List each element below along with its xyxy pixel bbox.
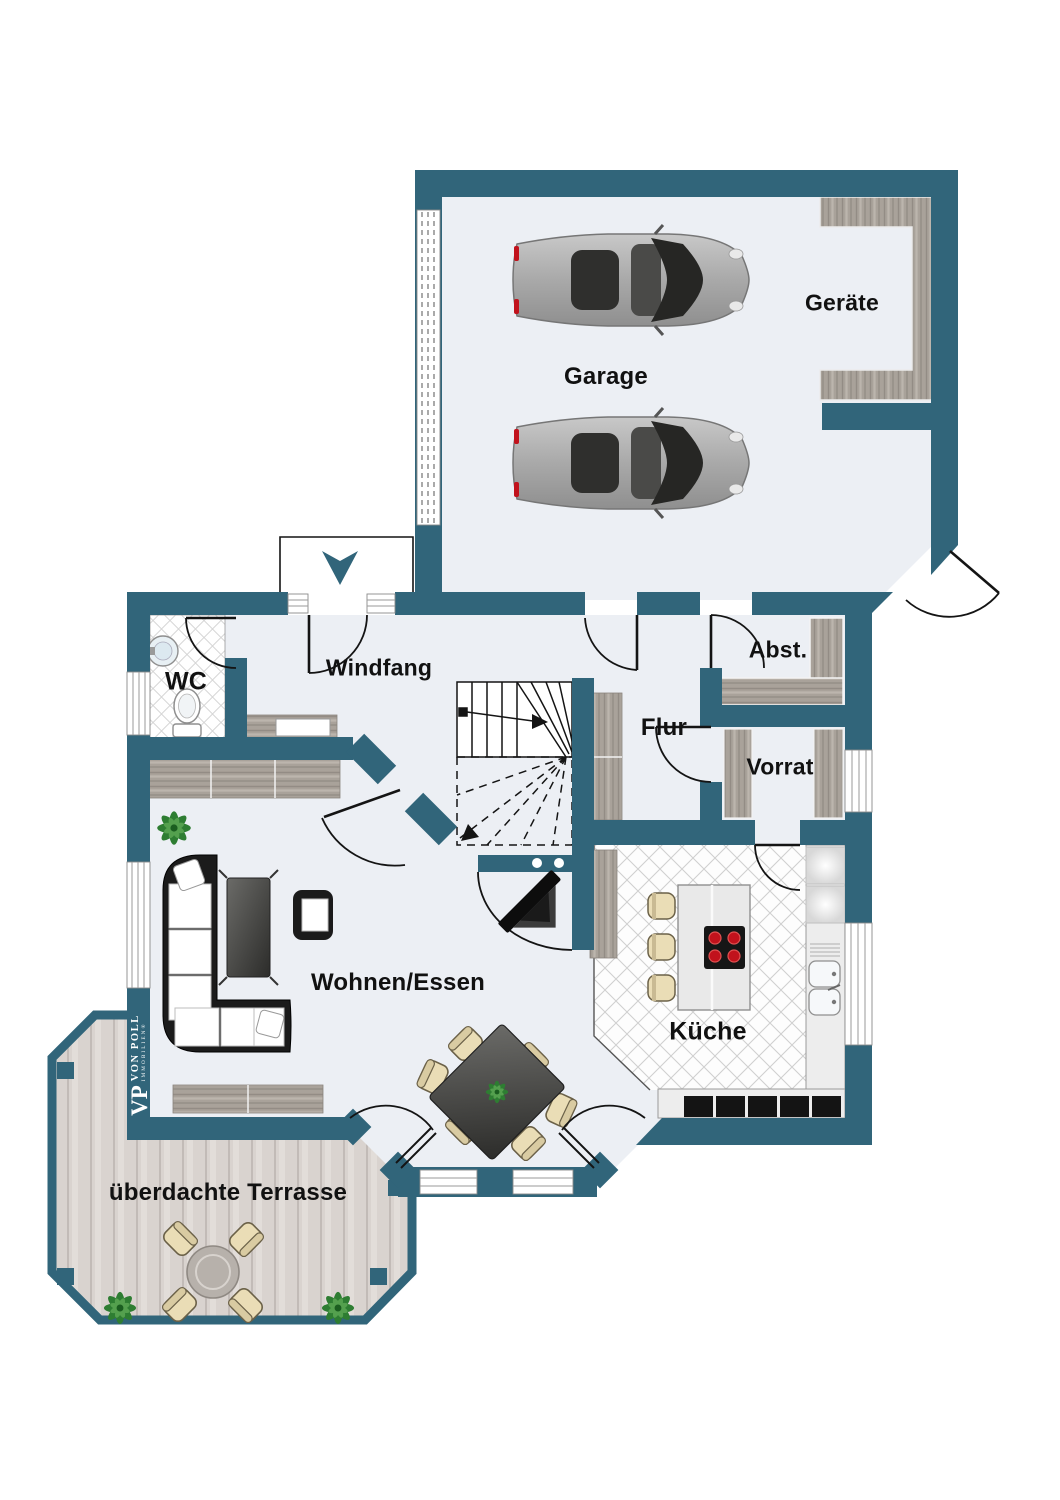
kitchen-island <box>648 885 750 1010</box>
kitchen-tall-cabinet <box>590 850 617 958</box>
window <box>127 862 150 988</box>
room-label-abst: Abst. <box>749 637 808 664</box>
plant-icon <box>104 1292 136 1324</box>
coffee-table <box>219 870 278 985</box>
plant-icon <box>157 811 191 845</box>
room-label-flur: Flur <box>641 714 687 742</box>
logo-sub: IMMOBILIEN® <box>142 1014 147 1081</box>
stool-icon <box>648 934 675 960</box>
car-icon <box>513 225 749 335</box>
room-label-kueche: Küche <box>669 1018 746 1047</box>
logo-monogram: VP <box>127 1085 150 1116</box>
armchair <box>293 890 333 940</box>
terrace-table <box>187 1246 239 1298</box>
room-label-vorrat: Vorrat <box>746 754 813 781</box>
window <box>420 1170 477 1194</box>
window <box>845 750 872 812</box>
lower-sideboard <box>173 1085 323 1113</box>
von-poll-logo: VP VON POLL IMMOBILIEN® <box>127 1013 150 1117</box>
hallway-cabinet <box>592 693 622 820</box>
appliance-icon <box>806 886 845 923</box>
floor-plan-drawing <box>0 0 1060 1500</box>
room-label-garage: Garage <box>564 363 648 391</box>
appliance-icon <box>806 847 845 884</box>
window <box>288 594 308 613</box>
room-label-geraete: Geräte <box>805 290 879 317</box>
room-label-windfang: Windfang <box>326 655 432 682</box>
window <box>127 672 150 735</box>
logo-name: VON POLL <box>130 1014 141 1081</box>
room-label-wohnen: Wohnen/Essen <box>311 969 485 997</box>
car-icon <box>513 408 749 518</box>
cooktop-icon <box>704 926 745 969</box>
stool-icon <box>648 893 675 919</box>
windfang-bench <box>238 715 337 740</box>
wc-sink-icon <box>148 636 178 666</box>
kitchen-bottom-counter <box>658 1089 845 1118</box>
room-label-wc: WC <box>165 668 207 697</box>
entrance-canopy <box>280 537 413 592</box>
entrance-arrow-icon <box>322 551 358 585</box>
window <box>367 594 395 613</box>
window <box>513 1170 573 1194</box>
window <box>845 923 872 1045</box>
garage-door <box>417 210 440 525</box>
stool-icon <box>648 975 675 1001</box>
plant-icon <box>322 1292 354 1324</box>
floor-plan: Garage Geräte WC Windfang Flur Abst. Vor… <box>0 0 1060 1500</box>
kitchen-right-counter <box>806 845 845 1118</box>
room-label-terrasse: überdachte Terrasse <box>109 1179 347 1207</box>
sideboard <box>147 758 340 798</box>
